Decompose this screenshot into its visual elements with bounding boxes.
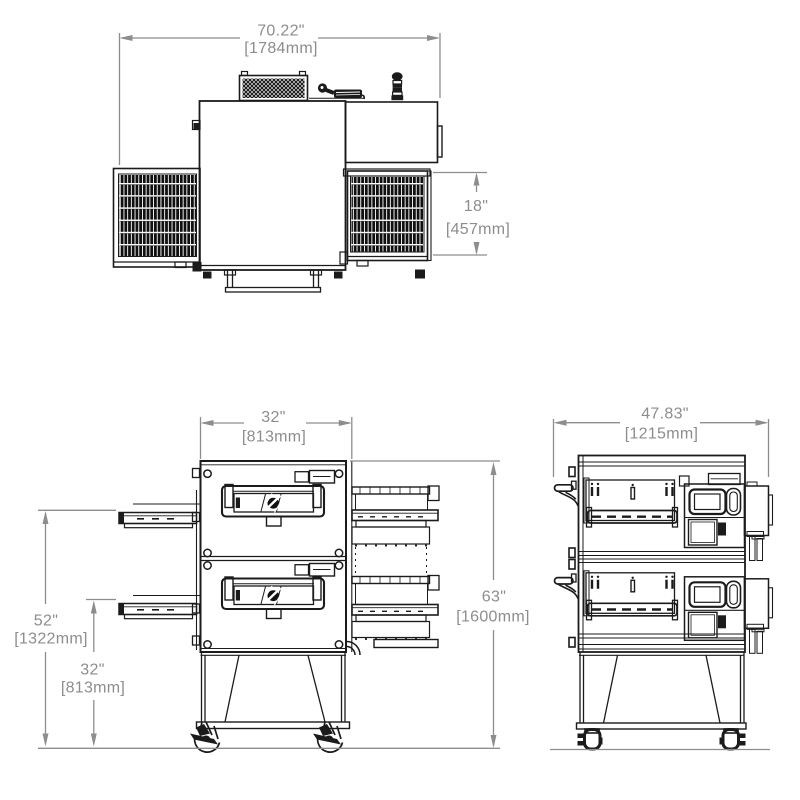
svg-text:[813mm]: [813mm]: [242, 429, 306, 446]
svg-text:63": 63": [482, 589, 506, 606]
svg-text:[1784mm]: [1784mm]: [244, 40, 318, 57]
svg-text:[1322mm]: [1322mm]: [14, 631, 88, 648]
svg-text:47.83": 47.83": [641, 406, 689, 423]
svg-text:52": 52": [34, 613, 58, 630]
svg-text:[813mm]: [813mm]: [61, 680, 125, 697]
svg-text:[1600mm]: [1600mm]: [456, 609, 530, 626]
svg-text:[1215mm]: [1215mm]: [625, 426, 699, 443]
svg-text:32": 32": [80, 662, 104, 679]
svg-text:18": 18": [464, 198, 488, 215]
svg-text:32": 32": [261, 409, 285, 426]
svg-text:[457mm]: [457mm]: [446, 221, 510, 238]
svg-text:70.22": 70.22": [257, 23, 305, 40]
